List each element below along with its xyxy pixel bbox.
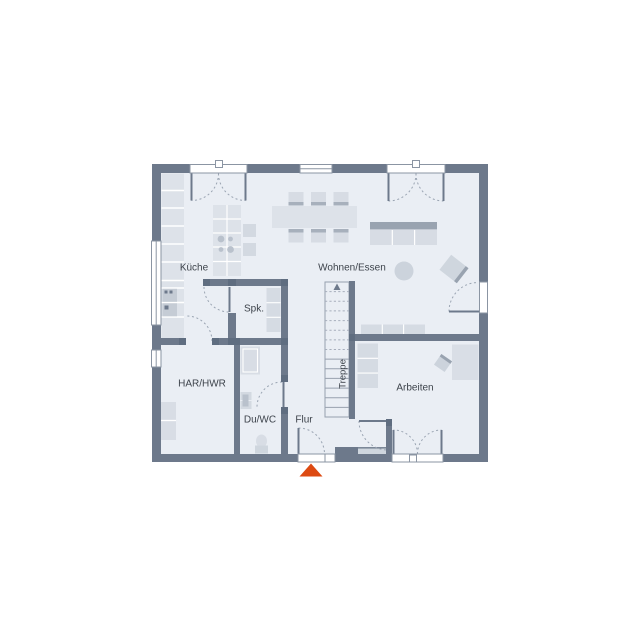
bar-stool [243, 224, 256, 237]
room-label-treppe: Treppe [338, 359, 349, 389]
dining-table [272, 206, 357, 228]
floor-plan: Küche Wohnen/Essen Spk. HAR/HWR Du/WC Fl… [0, 0, 636, 636]
staircase [325, 282, 349, 417]
window-left-kueche [152, 241, 162, 325]
sofa [370, 222, 437, 245]
washing-machine [161, 402, 177, 440]
room-label-du-wc: Du/WC [244, 415, 276, 426]
desk [452, 345, 479, 381]
room-label-wohnen-essen: Wohnen/Essen [318, 263, 386, 274]
shower [241, 347, 261, 375]
room-label-flur: Flur [295, 415, 313, 426]
french-door-kueche [190, 161, 247, 174]
pantry-shelves [267, 288, 281, 332]
room-label-spk: Spk. [244, 304, 264, 315]
tv-lowboard [361, 325, 425, 335]
toilet-icon [255, 435, 268, 454]
entrance-marker-icon [300, 464, 323, 477]
room-label-arbeiten: Arbeiten [396, 383, 433, 394]
kitchen-counter [162, 174, 185, 339]
entrance-door [298, 454, 335, 462]
french-door-arbeiten [392, 454, 443, 462]
bookshelf [358, 344, 379, 389]
window-top [300, 165, 332, 174]
terrace-door-right [480, 282, 488, 313]
bar-stool [243, 243, 256, 256]
flur-sideboard [358, 448, 386, 455]
french-door-wohnen [387, 161, 445, 174]
coffee-table [395, 262, 414, 281]
floor-plan-page: Küche Wohnen/Essen Spk. HAR/HWR Du/WC Fl… [0, 0, 636, 636]
room-label-kueche: Küche [180, 263, 209, 274]
window-left-har [152, 350, 162, 367]
room-label-har-hwr: HAR/HWR [178, 379, 226, 390]
